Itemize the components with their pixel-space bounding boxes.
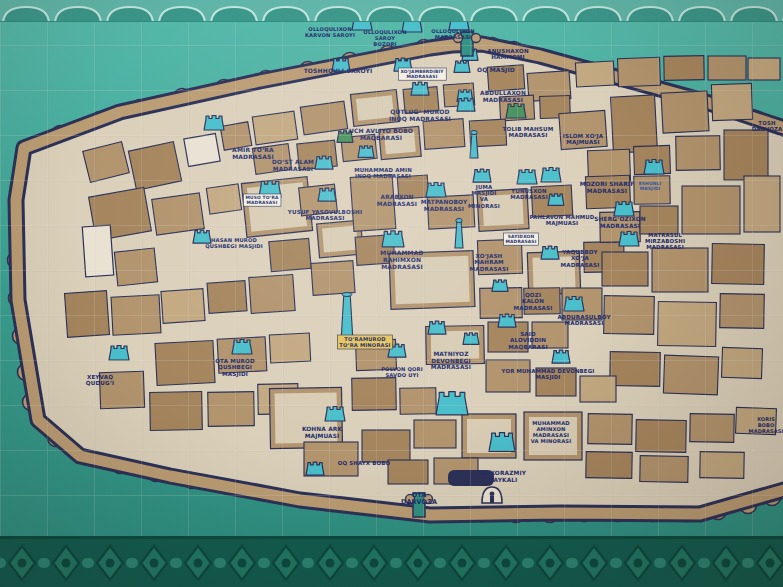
map-label: MOZORI SHARIFMADRASASI [580, 181, 635, 194]
map-label: TO‘RAMURODTO‘RA MINORASI [339, 336, 390, 348]
map-label: XEYVAQQUDUG‘I [86, 374, 114, 386]
map-label: SHERG‘OZIXONMADRASASI [594, 216, 646, 229]
border-top-tiles [0, 0, 783, 22]
map-label: KOHNA ARKMAJMUASI [302, 426, 343, 440]
map-label: OLLOQULIXONMADRASASI [431, 28, 474, 40]
map-label: TOLIB MAHSUMMADRASASI [503, 126, 554, 138]
map-label: HASAN MURODQUSHBEGI MASJIDI [205, 237, 263, 250]
map-label: MATRASULMIRZABOSHIMADRASASI [645, 232, 685, 250]
map-label: POLVON QORISAVDO UYI [381, 366, 423, 378]
map-label: MATNIYOZDEVONBEGIMADRASASI [431, 351, 471, 370]
map-label: OLLOQULIXONKARVON SAROYI [305, 26, 355, 38]
map-label: ANUSHAXONHAMMOMI [487, 48, 529, 60]
map-label: MUSO TO‘RAMADRASASI [245, 195, 278, 205]
border-bottom-tiles [0, 538, 783, 587]
map-canvas: POLVONDARVOZAOLLOQULIXONKARVON SAROYIOLL… [0, 0, 783, 587]
map-label: ABDULLAXONMADRASASI [480, 90, 526, 103]
map-label: OQ MASJID [477, 66, 515, 74]
khiva-tile-map-photo: POLVONDARVOZAOLLOQULIXONKARVON SAROYIOLL… [0, 0, 783, 587]
map-label: OQ SHAYX BOBO [338, 460, 391, 466]
map-label: TOSHHOVLI SAROYI [304, 67, 373, 74]
map-label: AMIR TO‘RAMADRASASI [232, 146, 274, 160]
map-label: MUHAMMADAMINXONMADRASASIVA MINORASI [531, 420, 572, 444]
map-label: MUHAMMAD AMININOQ MADRASASI [354, 167, 412, 179]
map-label: ESHONLIMASJIDI [639, 181, 662, 191]
map-label: SAYIDXONMADRASASI [506, 234, 537, 244]
map-label: MUHAMMADRAHIMXONMADRASASI [380, 249, 423, 270]
map-label: ARABXONMADRASASI [377, 194, 417, 207]
map-label: QUTLUG‘ MURODINOQ MADRASASI [389, 108, 451, 122]
border-bottom-edge [0, 536, 783, 539]
map-label: ABDURASULBOYMADRASASI [557, 314, 611, 326]
tile-grid [0, 20, 783, 540]
map-label: DO‘ST ALAMMADRASASI [272, 159, 314, 172]
map-label: ISLOM XO‘JAMAJMUASI [563, 133, 604, 146]
map-label: MATPANOBOYMADRASASI [421, 199, 468, 212]
map-label: YUNUSXONMADRASASI [510, 188, 548, 200]
